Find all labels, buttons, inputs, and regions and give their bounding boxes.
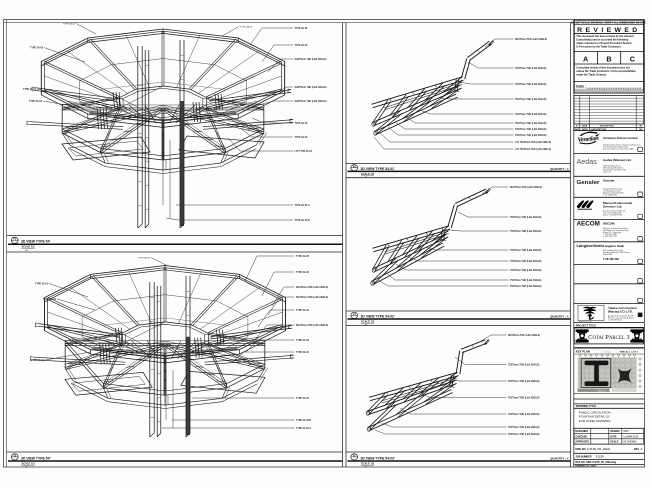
svg-text:REV: REV bbox=[634, 448, 639, 451]
svg-text:SCALE 1/2: SCALE 1/2 bbox=[22, 245, 36, 249]
svg-text:REF. NO. SMC-3-SUB_FD_2009.dw: REF. NO. SMC-3-SUB_FD_2009.dwg bbox=[575, 461, 616, 464]
svg-text:DWG NO.: DWG NO. bbox=[575, 448, 586, 451]
svg-text:A3: A3 bbox=[25, 249, 27, 252]
svg-text:75X75mm THK (L&S ANGLE): 75X75mm THK (L&S ANGLE) bbox=[515, 134, 547, 137]
svg-text:TYPE 3A-03: TYPE 3A-03 bbox=[31, 359, 45, 362]
svg-text:Langdon Seah: Langdon Seah bbox=[603, 244, 624, 248]
svg-text:SHS75mm THK (L&S ANGLE): SHS75mm THK (L&S ANGLE) bbox=[295, 58, 327, 61]
svg-text:DATE: DATE bbox=[610, 435, 617, 438]
svg-text:75X75mm THK (L&S ANGLE): 75X75mm THK (L&S ANGLE) bbox=[515, 128, 547, 131]
svg-text:PARCEL 1, LOT 2: PARCEL 1, LOT 2 bbox=[620, 351, 639, 354]
svg-text:75X75mm THK (L&S ANGLE): 75X75mm THK (L&S ANGLE) bbox=[515, 122, 547, 125]
svg-text:75X75mm THK (L&S ANGLE): 75X75mm THK (L&S ANGLE) bbox=[510, 230, 542, 233]
svg-text:DESIGNED: DESIGNED bbox=[575, 430, 588, 433]
svg-text:C: C bbox=[630, 54, 635, 63]
svg-text:TYPE 3A-06: TYPE 3A-06 bbox=[63, 23, 76, 26]
svg-text:LangdonSeah: LangdonSeah bbox=[577, 243, 604, 248]
svg-text:L75 75X75mm THK (L&S ANGLE): L75 75X75mm THK (L&S ANGLE) bbox=[515, 148, 551, 151]
svg-text:T 28 788 339: T 28 788 339 bbox=[603, 257, 619, 261]
svg-text:75X75mm THK (L&S ANGLE): 75X75mm THK (L&S ANGLE) bbox=[510, 249, 542, 252]
svg-text:SHS75mm THK (L&S ANGLE): SHS75mm THK (L&S ANGLE) bbox=[515, 38, 547, 41]
svg-text:75X75mm THK (L&S ANGLE): 75X75mm THK (L&S ANGLE) bbox=[510, 285, 542, 288]
svg-text:3-SUB_FD_W&H: 3-SUB_FD_W&H bbox=[587, 447, 610, 451]
svg-text:Aedas (Macau) Ltd.: Aedas (Macau) Ltd. bbox=[603, 158, 632, 162]
svg-text:TYPE 3A-06: TYPE 3A-06 bbox=[138, 257, 151, 260]
svg-text:TYPE 3A-05 A: TYPE 3A-05 A bbox=[295, 204, 310, 207]
svg-text:SHO: SHO bbox=[623, 430, 628, 433]
svg-text:SCALE 1/2: SCALE 1/2 bbox=[361, 172, 375, 176]
svg-text:T +853 2837 3614: T +853 2837 3614 bbox=[608, 319, 622, 321]
svg-text:75X75mm THK (L&S ANGLE): 75X75mm THK (L&S ANGLE) bbox=[508, 433, 540, 436]
svg-text:TYPE 3A-01: TYPE 3A-01 bbox=[23, 88, 37, 91]
svg-text:Services Ltd.: Services Ltd. bbox=[603, 205, 622, 209]
svg-text:TYPE 3A-04: TYPE 3A-04 bbox=[295, 136, 309, 139]
svg-text:(Macau) CO, LTD.: (Macau) CO, LTD. bbox=[608, 310, 633, 314]
svg-text:SCALE 1/2: SCALE 1/2 bbox=[361, 319, 375, 323]
svg-text:5.4 for action by the Tra: 5.4 for action by the Trade Contractor. bbox=[576, 46, 621, 49]
svg-text:Aedas: Aedas bbox=[577, 157, 598, 166]
svg-text:TYPE 3A-05 B: TYPE 3A-05 B bbox=[295, 219, 311, 222]
svg-text:75X75mm THK (L&S ANGLE): 75X75mm THK (L&S ANGLE) bbox=[508, 426, 540, 429]
svg-text:AS SHOWN: AS SHOWN bbox=[623, 441, 636, 444]
svg-text:licence no. C-1234: licence no. C-1234 bbox=[579, 321, 592, 323]
svg-text:75X75mm THK (L&S ANGLE): 75X75mm THK (L&S ANGLE) bbox=[508, 364, 540, 367]
svg-text:75X75mm THK (L&S ANGLE): 75X75mm THK (L&S ANGLE) bbox=[515, 67, 547, 70]
svg-text:TYPE 3A-04: TYPE 3A-04 bbox=[296, 351, 310, 354]
svg-text:TYPE 3A-03: TYPE 3A-03 bbox=[296, 271, 310, 274]
svg-text:aedas.com: aedas.com bbox=[603, 172, 612, 174]
svg-text:TYPE 3A-05: TYPE 3A-05 bbox=[295, 27, 309, 30]
svg-text:TYPE 3A-05 B: TYPE 3A-05 B bbox=[296, 419, 312, 422]
svg-text:TYPE 3A-05: TYPE 3A-05 bbox=[296, 397, 310, 400]
svg-text:TYPE 3A-02: TYPE 3A-02 bbox=[296, 309, 310, 312]
svg-text:75X75mm THK (L&S ANGLE): 75X75mm THK (L&S ANGLE) bbox=[515, 113, 547, 116]
svg-text:75X75mm THK (L&S ANGLE): 75X75mm THK (L&S ANGLE) bbox=[515, 83, 547, 86]
svg-text:Executive Offices-L2, Taipa, M: Executive Offices-L2, Taipa, Macao SAR bbox=[603, 148, 634, 151]
svg-text:TYPE 3A-03: TYPE 3A-03 bbox=[295, 44, 309, 47]
svg-text:TYPE 3A-05: TYPE 3A-05 bbox=[296, 255, 310, 258]
svg-text:L75 75X75mm THK (L&S ANGLE): L75 75X75mm THK (L&S ANGLE) bbox=[515, 141, 551, 144]
svg-text:SHS75mm THK (L&S ANGLE): SHS75mm THK (L&S ANGLE) bbox=[510, 186, 542, 189]
svg-text:3D VIEW TYPE 54-02': 3D VIEW TYPE 54-02' bbox=[361, 314, 395, 318]
svg-text:Macau T +853 2878 3396: Macau T +853 2878 3396 bbox=[603, 215, 622, 217]
svg-text:SHS75mm THK (L&S ANGLE): SHS75mm THK (L&S ANGLE) bbox=[296, 324, 328, 327]
svg-text:3D VIEW TYPE 54-01': 3D VIEW TYPE 54-01' bbox=[361, 167, 395, 171]
svg-text:A: A bbox=[583, 54, 588, 63]
svg-text:75X75mm THK (L&S ANGLE): 75X75mm THK (L&S ANGLE) bbox=[510, 260, 542, 263]
svg-text:75X75mm THK (L&S ANGLE): 75X75mm THK (L&S ANGLE) bbox=[510, 269, 542, 272]
svg-text:DRAWING TITLE: DRAWING TITLE bbox=[576, 404, 597, 408]
svg-text:Gensler: Gensler bbox=[603, 179, 615, 183]
svg-text:12-MAR-2010: 12-MAR-2010 bbox=[623, 435, 639, 438]
svg-text:APPROVED: APPROVED bbox=[575, 441, 589, 444]
svg-text:SHS75mm THK (L&S ANGLE): SHS75mm THK (L&S ANGLE) bbox=[508, 334, 540, 337]
svg-text:TYPE 3A-03: TYPE 3A-03 bbox=[295, 122, 309, 125]
svg-text:TYPE 3A-05 A: TYPE 3A-05 A bbox=[296, 427, 311, 430]
svg-text:TYPE 3A-03: TYPE 3A-03 bbox=[296, 339, 310, 342]
svg-text:3D VIEW TYPE 54'': 3D VIEW TYPE 54'' bbox=[21, 456, 51, 460]
svg-text:3D VIEW TYPE 54-03': 3D VIEW TYPE 54-03' bbox=[361, 456, 395, 460]
svg-text:75X75mm THK (L&S ANGLE): 75X75mm THK (L&S ANGLE) bbox=[510, 279, 542, 282]
svg-text:1 : 1 / 1,0: 1 : 1 / 1,0 bbox=[602, 351, 611, 353]
svg-text:F +852 3922 9797: F +852 3922 9797 bbox=[603, 236, 617, 238]
svg-text:3D VIEW TYPE 54': 3D VIEW TYPE 54' bbox=[21, 240, 50, 244]
svg-text:Macau SAR: Macau SAR bbox=[603, 253, 613, 256]
svg-text:REVIEWED: REVIEWED bbox=[577, 27, 640, 34]
svg-text:SCALE 1/2: SCALE 1/2 bbox=[22, 461, 36, 465]
svg-text:PROJECT TITLE: PROJECT TITLE bbox=[576, 323, 596, 327]
svg-text:AECOM: AECOM bbox=[577, 221, 600, 228]
svg-text:SHS75mm THK (L&S ANGLE): SHS75mm THK (L&S ANGLE) bbox=[296, 296, 328, 299]
svg-text:SHS75mm THK (L&S ANGLE): SHS75mm THK (L&S ANGLE) bbox=[295, 100, 327, 103]
svg-text:A3: A3 bbox=[25, 466, 27, 469]
svg-text:JOB NUMBER: JOB NUMBER bbox=[575, 455, 591, 458]
svg-text:TYPE 3A-01: TYPE 3A-01 bbox=[35, 283, 49, 286]
svg-text:AECOM: AECOM bbox=[603, 222, 615, 226]
svg-text:Venetian Orient Limited: Venetian Orient Limited bbox=[603, 136, 638, 140]
svg-text:75X75mm THK (L&S ANGLE): 75X75mm THK (L&S ANGLE) bbox=[515, 98, 547, 101]
svg-text:QUANTITY : 4: QUANTITY : 4 bbox=[550, 456, 569, 460]
svg-text:PARCEL 2: PARCEL 2 bbox=[598, 389, 607, 392]
svg-text:TYPE 3A-03: TYPE 3A-03 bbox=[30, 47, 44, 50]
svg-text:TYPE 3A-02: TYPE 3A-02 bbox=[29, 100, 43, 103]
svg-text:75X75mm THK (L&S ANGLE): 75X75mm THK (L&S ANGLE) bbox=[508, 380, 540, 383]
svg-text:CHECKED: CHECKED bbox=[575, 435, 587, 438]
svg-text:Date :: Date : bbox=[576, 84, 586, 88]
svg-text:T +81 3 6403 9292: T +81 3 6403 9292 bbox=[603, 194, 617, 196]
svg-text:DRAWN: DRAWN bbox=[610, 430, 619, 433]
svg-text:FOR STEEL DRAWING: FOR STEEL DRAWING bbox=[579, 419, 611, 423]
svg-text:L75 TYPE 3A-05: L75 TYPE 3A-05 bbox=[295, 150, 313, 153]
svg-text:KEY PLAN: KEY PLAN bbox=[576, 350, 590, 354]
svg-text:DRAWING No. W&H: DRAWING No. W&H bbox=[575, 465, 596, 468]
svg-text:QUANTITY : 4: QUANTITY : 4 bbox=[550, 167, 569, 171]
svg-text:SCALE: SCALE bbox=[610, 441, 619, 444]
svg-text:SHS75mm THK (L&S ANGLE): SHS75mm THK (L&S ANGLE) bbox=[295, 86, 327, 89]
svg-text:TYPE 3A-02: TYPE 3A-02 bbox=[43, 298, 57, 301]
svg-text:75X75mm THK (L&S ANGLE): 75X75mm THK (L&S ANGLE) bbox=[508, 413, 540, 416]
svg-text:COTAI PARCEL 3: COTAI PARCEL 3 bbox=[588, 334, 630, 341]
svg-text:SCALE 1/2: SCALE 1/2 bbox=[361, 461, 375, 465]
svg-text:QUANTITY : 4: QUANTITY : 4 bbox=[550, 314, 569, 318]
svg-text:75X75mm THK (L&S ANGLE): 75X75mm THK (L&S ANGLE) bbox=[510, 216, 542, 219]
svg-text:Gensler: Gensler bbox=[576, 180, 600, 186]
svg-text:TYPE 3A-05: TYPE 3A-05 bbox=[240, 26, 253, 29]
svg-text:under the Trade Contract.: under the Trade Contract. bbox=[576, 73, 607, 76]
svg-text:A3: A3 bbox=[365, 466, 367, 469]
svg-text:SHS75mm THK (L&S ANGLE): SHS75mm THK (L&S ANGLE) bbox=[296, 286, 328, 289]
svg-text:B: B bbox=[606, 54, 611, 63]
svg-text:A: A bbox=[641, 447, 643, 451]
svg-text:75X75mm THK (L&S ANGLE): 75X75mm THK (L&S ANGLE) bbox=[508, 397, 540, 400]
svg-text:31528: 31528 bbox=[596, 455, 604, 459]
